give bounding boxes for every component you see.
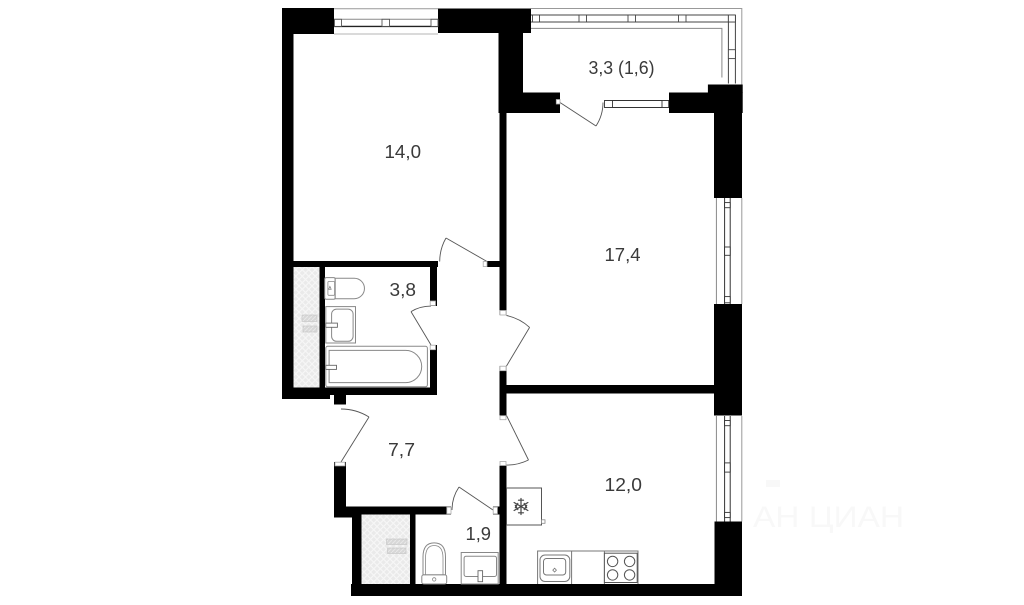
svg-text:1,9: 1,9 <box>466 523 492 544</box>
svg-text:14,0: 14,0 <box>385 141 422 162</box>
svg-text:3,3 (1,6): 3,3 (1,6) <box>589 57 655 78</box>
svg-text:17,4: 17,4 <box>605 244 641 265</box>
svg-text:7,7: 7,7 <box>388 439 415 460</box>
svg-text:АН ЦИАН: АН ЦИАН <box>753 501 904 534</box>
svg-text:12,0: 12,0 <box>605 474 643 495</box>
svg-text:3,8: 3,8 <box>390 279 417 300</box>
